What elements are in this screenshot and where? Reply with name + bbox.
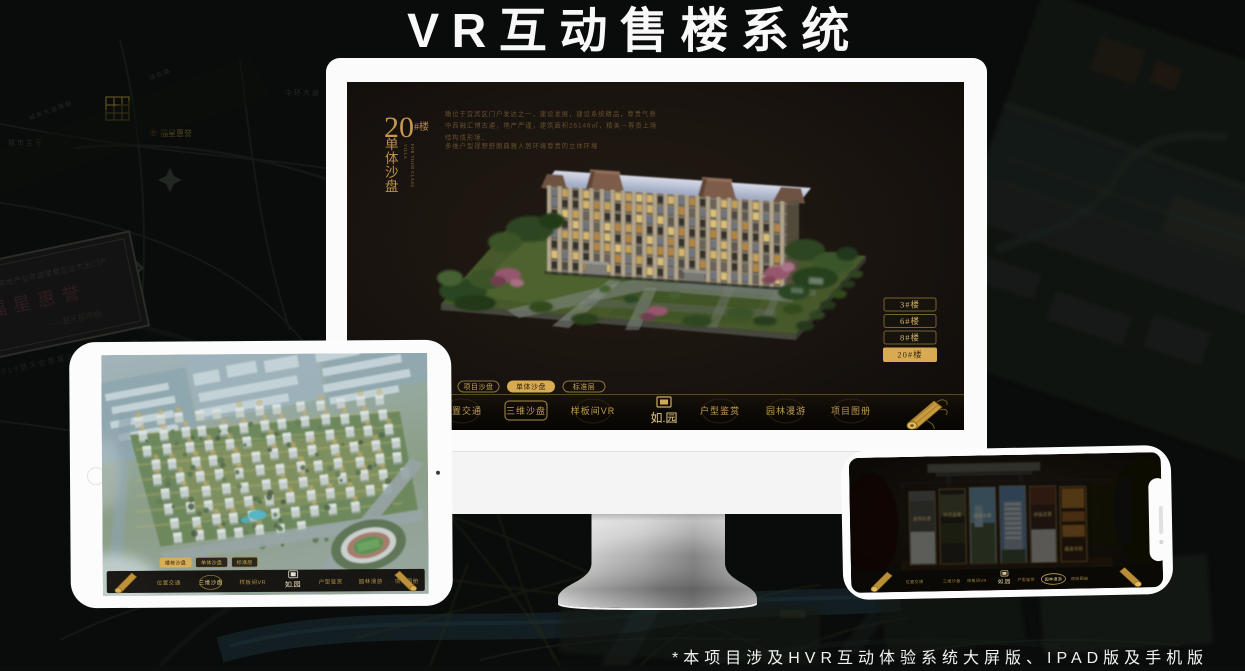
svg-text:如.园: 如.园 xyxy=(285,580,301,589)
svg-text:单体沙盘: 单体沙盘 xyxy=(201,559,222,566)
svg-text:样板间VR: 样板间VR xyxy=(571,405,616,416)
svg-text:项目沙盘: 项目沙盘 xyxy=(464,382,494,391)
svg-text:结构成形境．: 结构成形境． xyxy=(445,133,489,142)
svg-text:20#楼: 20#楼 xyxy=(897,350,922,360)
svg-text:位置交通: 位置交通 xyxy=(157,579,181,587)
svg-text:园林漫游: 园林漫游 xyxy=(1044,576,1062,581)
svg-text:园林漫游: 园林漫游 xyxy=(766,405,806,416)
svg-text:标准层: 标准层 xyxy=(237,559,253,566)
svg-text:样板间VR: 样板间VR xyxy=(967,578,987,583)
svg-text:8#楼: 8#楼 xyxy=(900,333,920,343)
svg-text:6#楼: 6#楼 xyxy=(900,316,920,326)
svg-text:单体沙盘: 单体沙盘 xyxy=(516,382,546,391)
svg-text:中西融汇博古通，地产严谨，建筑面积26146㎡，精美－尊贵上: 中西融汇博古通，地产严谨，建筑面积26146㎡，精美－尊贵上境 xyxy=(445,121,657,130)
svg-text:三维沙盘: 三维沙盘 xyxy=(506,405,546,416)
svg-text:单: 单 xyxy=(385,137,399,152)
svg-text:如.园: 如.园 xyxy=(650,410,677,425)
svg-text:3#楼: 3#楼 xyxy=(900,300,920,310)
svg-text:#楼: #楼 xyxy=(414,120,429,133)
svg-text:楼栋沙盘: 楼栋沙盘 xyxy=(165,560,186,567)
svg-text:园林漫游: 园林漫游 xyxy=(359,577,383,585)
svg-text:户型鉴赏: 户型鉴赏 xyxy=(700,405,740,416)
svg-text:体: 体 xyxy=(385,151,399,166)
svg-text:户型鉴赏: 户型鉴赏 xyxy=(319,577,343,585)
svg-text:标准层: 标准层 xyxy=(573,382,596,391)
svg-text:户型鉴赏: 户型鉴赏 xyxy=(1017,577,1035,582)
svg-text:项目图册: 项目图册 xyxy=(831,406,871,416)
svg-text:如.园: 如.园 xyxy=(998,577,1011,585)
svg-text:FOR YOUR CLASS: FOR YOUR CLASS xyxy=(410,144,415,187)
svg-text:盘: 盘 xyxy=(385,178,399,194)
svg-text:三维沙盘: 三维沙盘 xyxy=(943,578,961,583)
svg-text:瞰位于宜宾区门户发达之一，建设发展，建设系统精品，尊贵气质: 瞰位于宜宾区门户发达之一，建设发展，建设系统精品，尊贵气质 xyxy=(445,109,657,118)
svg-text:VILLA: VILLA xyxy=(403,144,408,160)
svg-text:项目图册: 项目图册 xyxy=(1071,576,1089,581)
svg-text:三维沙盘: 三维沙盘 xyxy=(199,578,223,586)
svg-text:多维户型视野舒朗典雅人居环境尊贵的立体环境: 多维户型视野舒朗典雅人居环境尊贵的立体环境 xyxy=(445,141,598,150)
svg-text:样板间VR: 样板间VR xyxy=(239,578,266,586)
svg-text:位置交通: 位置交通 xyxy=(906,579,924,584)
svg-text:沙: 沙 xyxy=(385,165,399,180)
